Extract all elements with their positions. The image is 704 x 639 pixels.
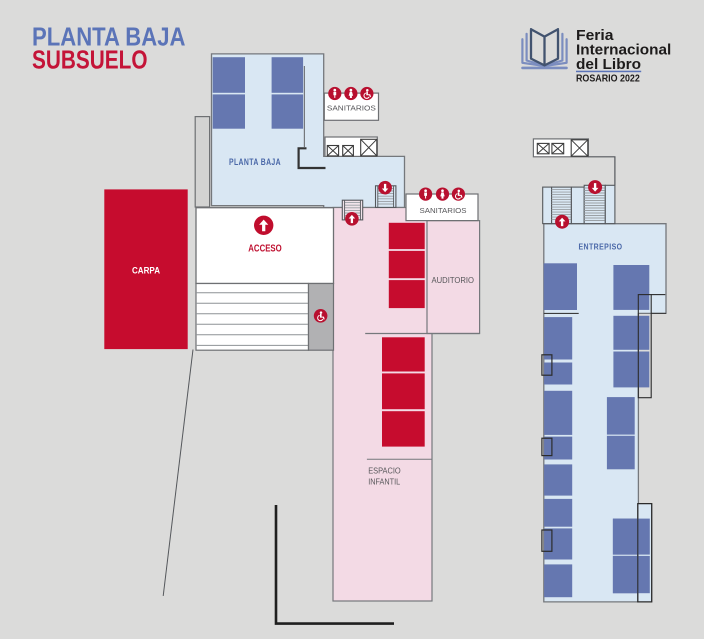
- svg-text:ACCESO: ACCESO: [248, 243, 282, 254]
- svg-text:PLANTA BAJA: PLANTA BAJA: [229, 157, 281, 167]
- svg-text:SANITARIOS: SANITARIOS: [420, 206, 467, 215]
- svg-text:del Libro: del Libro: [576, 57, 641, 73]
- svg-text:CARPA: CARPA: [132, 265, 160, 276]
- svg-text:ESPACIO: ESPACIO: [368, 467, 401, 476]
- svg-text:SUBSUELO: SUBSUELO: [32, 44, 148, 74]
- svg-text:AUDITORIO: AUDITORIO: [432, 276, 475, 285]
- svg-text:SANITARIOS: SANITARIOS: [327, 106, 376, 113]
- svg-text:ENTREPISO: ENTREPISO: [579, 242, 623, 252]
- svg-text:INFANTIL: INFANTIL: [368, 477, 401, 486]
- svg-text:ROSARIO 2022: ROSARIO 2022: [576, 74, 640, 85]
